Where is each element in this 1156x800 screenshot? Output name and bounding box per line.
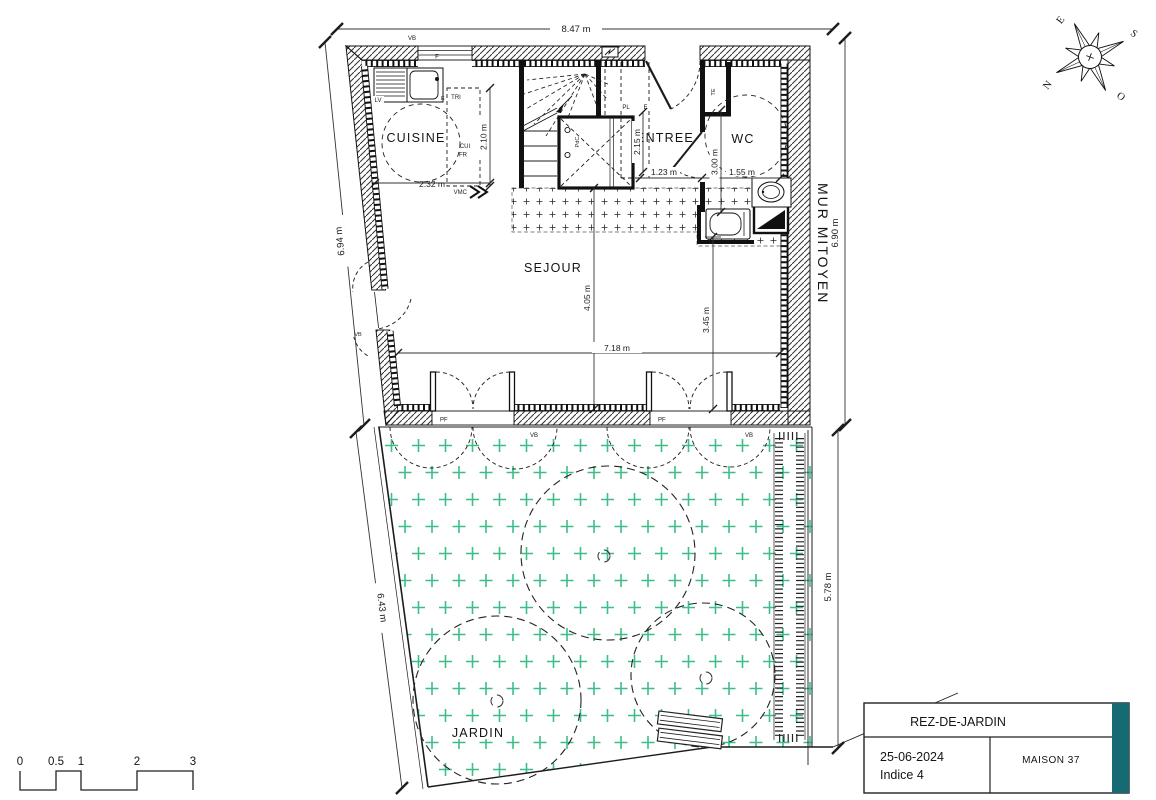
dim-text: 5.78 m	[823, 572, 834, 601]
kitchen-unit-zone	[447, 88, 480, 186]
dim-text: 2.15 m	[632, 129, 642, 155]
revision-index: Indice 4	[880, 768, 924, 782]
closet-tag-pl: PL	[622, 105, 630, 111]
unit-tag-cui: CUI	[460, 144, 471, 150]
interior: PdC PL E TE	[352, 60, 791, 411]
dim-entree-depth: 3.45 m	[701, 233, 721, 413]
dim-text: 1.23 m	[651, 167, 677, 177]
dim-kitchen-width: 2.32 m	[371, 179, 494, 189]
scale-tick: 0	[17, 756, 23, 768]
compass-rose: E S N O	[1041, 15, 1139, 104]
party-wall-label: MUR MITOYEN	[815, 183, 831, 304]
issue-date: 25-06-2024	[880, 750, 944, 764]
room-label-jardin: JARDIN	[450, 726, 506, 740]
scale-tick: 3	[190, 756, 196, 768]
title-block-accent-bar	[1112, 703, 1129, 793]
level-title: REZ-DE-JARDIN	[910, 715, 1006, 729]
party-wall	[788, 60, 810, 425]
entree-label: ENTREE	[636, 131, 694, 145]
dim-text: 3.45 m	[701, 307, 711, 333]
floor-plan-canvas: JARDIN V	[0, 0, 1156, 800]
window-tag-f: F	[435, 55, 439, 61]
compass-south: S	[1128, 28, 1140, 40]
title-block: REZ-DE-JARDIN 25-06-2024 Indice 4 MAISON…	[864, 703, 1129, 793]
dim-text: 8.47 m	[561, 24, 590, 35]
front-door-opening	[645, 46, 700, 60]
sink-tag-e: E	[441, 96, 445, 102]
window-tag-vb: VB	[408, 36, 416, 42]
sejour-label: SEJOUR	[524, 261, 582, 275]
dim-party-wall: 6.90 m	[830, 32, 851, 431]
scale-bar: 0 0.5 1 2 3	[17, 756, 196, 790]
bin-tag-tri: TRI	[451, 95, 461, 101]
side-door-opening	[372, 290, 390, 330]
dim-garden-right: 5.78 m	[823, 424, 844, 754]
vent-tag-vb: VB	[745, 433, 753, 439]
shaft-tag-pdc: PdC	[575, 137, 581, 148]
dim-text: 7.18 m	[604, 343, 630, 353]
dim-text: 3.00 m	[710, 149, 720, 175]
kitchen-window: VB F	[408, 36, 472, 61]
dim-text: 6.94 m	[334, 226, 348, 256]
dim-overall-width: 8.47 m	[331, 22, 839, 35]
utility-box-icon	[602, 47, 618, 57]
compass-east: E	[1055, 15, 1068, 27]
jardin-label: JARDIN	[452, 726, 504, 740]
dim-text: 2.32 m	[419, 179, 445, 189]
vent-tag-vb: VB	[530, 433, 538, 439]
dim-text: 1.55 m	[729, 167, 755, 177]
vmc-label: VMC	[454, 190, 468, 196]
french-door-1: PF	[432, 411, 514, 425]
stair-direction-arrow	[556, 104, 564, 113]
compass-north: N	[1041, 79, 1055, 92]
door-tag-pf: PF	[440, 418, 448, 424]
dim-sejour-width: 7.18 m	[394, 342, 784, 357]
wc-label: WC	[731, 132, 754, 146]
unit-tag-fr: FR	[459, 153, 468, 159]
dim-text: 6.90 m	[830, 218, 841, 247]
dim-text: 4.05 m	[582, 285, 592, 311]
shaft: PdC	[559, 117, 633, 188]
dim-kitchen-depth: 2.10 m	[479, 84, 495, 190]
cuisine-label: CUISINE	[386, 131, 445, 145]
compass-west: O	[1114, 90, 1127, 104]
door-tag-pf: PF	[658, 418, 666, 424]
dim-text: 6.43 m	[374, 593, 388, 623]
project-name: MAISON 37	[1022, 755, 1080, 766]
scale-tick: 0.5	[48, 756, 64, 768]
dim-text: 2.10 m	[479, 124, 489, 150]
niche-tag-te: TE	[711, 88, 717, 95]
appliance-tag-lv: LV	[375, 98, 382, 104]
wc-fixtures	[697, 178, 791, 244]
scale-tick: 2	[134, 756, 140, 768]
front-door	[646, 61, 700, 109]
vmc-flow-icon	[470, 186, 487, 198]
scale-tick: 1	[78, 756, 84, 768]
french-door-2: PF	[650, 411, 731, 425]
